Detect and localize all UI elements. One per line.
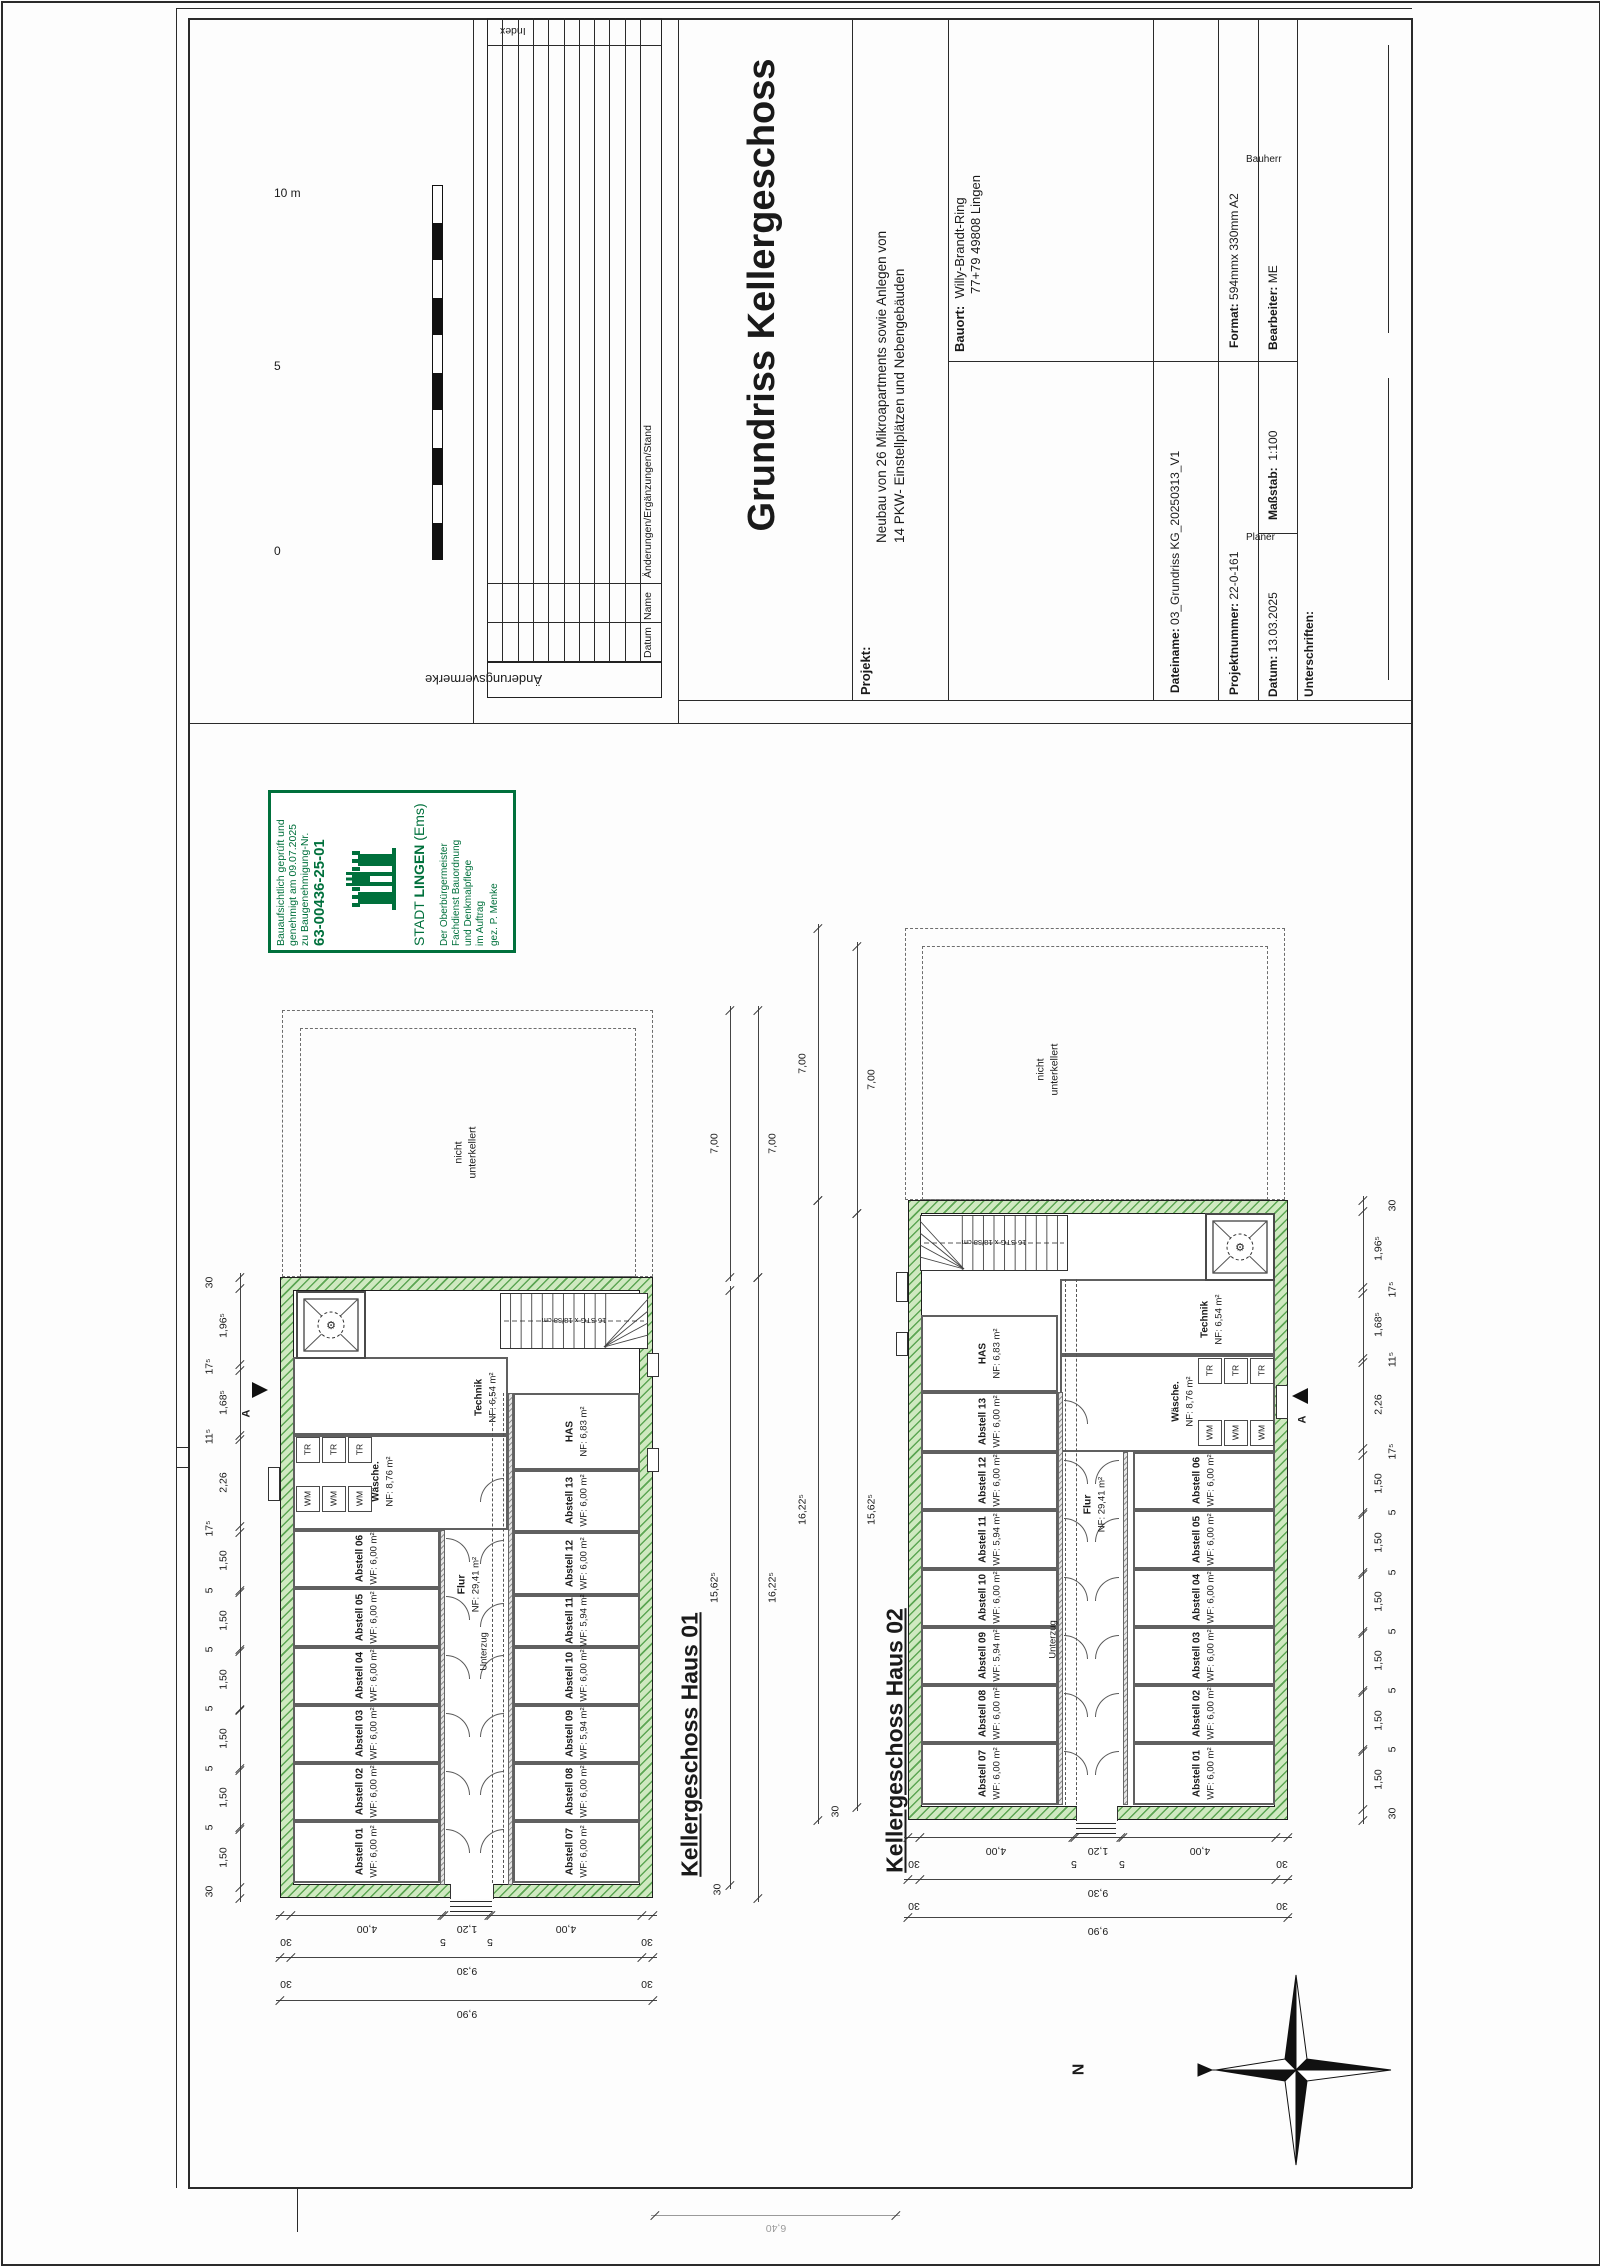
haus-2-room	[1060, 1279, 1275, 1355]
haus-2-room	[921, 1510, 1058, 1569]
haus-2-room	[921, 1685, 1058, 1743]
signature-line-bauherr	[1388, 45, 1389, 333]
haus-1-room	[513, 1705, 640, 1763]
revisions-row-line	[518, 18, 519, 662]
revisions-grid	[487, 18, 662, 662]
sheet-frame-left2	[176, 8, 177, 2188]
haus-2-room	[1133, 1569, 1275, 1627]
titleblock-hdiv-2	[1258, 533, 1297, 534]
haus-1-elevator-icon: ⚙	[296, 1291, 366, 1359]
haus-2-room	[1133, 1627, 1275, 1685]
haus-2-wm-box	[1198, 1420, 1222, 1446]
haus-1-room	[513, 1595, 640, 1647]
haus-1-light-well	[647, 1448, 659, 1472]
titleblock-div-a	[852, 18, 853, 701]
haus-2-corridor-wall	[1058, 1392, 1063, 1805]
haus-1-unterzug-line	[492, 1393, 493, 1883]
header-strip-bottom	[188, 723, 1412, 724]
signature-line-planer	[1388, 378, 1389, 680]
haus-2-wm-box	[1250, 1420, 1274, 1446]
haus-1-nicht-unterkellert-inner	[300, 1028, 636, 1277]
dim-line	[758, 1006, 759, 1281]
haus-2-light-well	[896, 1272, 908, 1302]
haus-2-light-well	[896, 1332, 908, 1356]
haus-1-room	[513, 1647, 640, 1705]
dim-line	[276, 2000, 657, 2001]
dim-line	[857, 942, 858, 1217]
haus-1-room	[293, 1357, 508, 1435]
revisions-col-line	[487, 622, 662, 623]
dim-line	[904, 1879, 1292, 1880]
revisions-row-line	[533, 18, 534, 662]
revisions-row-line	[609, 18, 610, 662]
revisions-col-line	[487, 583, 662, 584]
haus-1-stairs-icon	[500, 1293, 648, 1349]
haus-2-room	[1133, 1685, 1275, 1743]
haus-2-room	[1133, 1452, 1275, 1510]
sheet-frame-top2	[176, 8, 1412, 9]
titleblock-hdiv-1	[948, 361, 1297, 362]
dim-line	[758, 1273, 759, 1902]
sheet-frame-left	[188, 18, 190, 2188]
dim-line	[276, 1957, 657, 1958]
dim-line	[904, 1837, 1292, 1838]
haus-2-wm-box	[1224, 1420, 1248, 1446]
titleblock-div-c	[1153, 18, 1154, 701]
haus-1-tr-box	[296, 1437, 320, 1463]
haus-2-tr-box	[1250, 1358, 1274, 1384]
haus-1-corridor-wall	[440, 1530, 445, 1885]
haus-2-room	[921, 1392, 1058, 1452]
haus-1-room	[513, 1821, 640, 1883]
haus-2-section-marker-icon	[1292, 1388, 1308, 1404]
fold-mark-left-b	[176, 1467, 188, 1468]
revisions-row-line	[579, 18, 580, 662]
haus-2-room	[921, 1627, 1058, 1685]
haus-1-tr-box	[322, 1437, 346, 1463]
dim-line	[818, 924, 819, 1204]
dim-line	[651, 2215, 900, 2216]
north-arrow-icon	[1186, 1950, 1406, 2190]
haus-1-room	[293, 1705, 440, 1763]
haus-1-entrance-step	[450, 1901, 492, 1902]
image-border	[1, 1, 1600, 2266]
haus-2-tr-box	[1198, 1358, 1222, 1384]
haus-2-entrance-step	[1076, 1823, 1116, 1824]
titleblock-div-f	[1297, 18, 1298, 701]
haus-1-tr-box	[348, 1437, 372, 1463]
haus-1-corridor-wall	[508, 1393, 513, 1885]
haus-2-stairs-icon	[920, 1215, 1068, 1271]
dim-line	[276, 1915, 657, 1916]
haus-2-entrance-step	[1076, 1833, 1116, 1834]
dim-line	[730, 1286, 731, 1889]
haus-2-tr-box	[1224, 1358, 1248, 1384]
dim-line	[818, 1196, 819, 1824]
haus-1-wm-box	[322, 1486, 346, 1512]
scale-bar-segment	[433, 373, 442, 411]
haus-1-entrance-step	[450, 1906, 492, 1907]
haus-1-room	[293, 1530, 440, 1588]
haus-1-light-well	[647, 1353, 659, 1377]
haus-2-room	[1133, 1510, 1275, 1569]
haus-2-room	[921, 1743, 1058, 1805]
haus-1-wm-box	[296, 1486, 320, 1512]
haus-2-entrance-opening	[1076, 1806, 1118, 1821]
haus-1-section-marker-icon	[252, 1382, 268, 1398]
haus-1-room	[293, 1647, 440, 1705]
sheet-frame-top	[188, 18, 1412, 20]
revisions-row-line	[564, 18, 565, 662]
dim-line	[904, 1917, 1292, 1918]
scale-bar-segment	[433, 448, 442, 486]
header-divider-2	[678, 18, 679, 723]
haus-2-room	[921, 1452, 1058, 1510]
haus-1-entrance-step	[450, 1911, 492, 1912]
titleblock-bottom	[678, 700, 1412, 701]
revisions-row-line	[548, 18, 549, 662]
haus-2-room	[921, 1569, 1058, 1627]
haus-2-room	[1133, 1743, 1275, 1805]
revisions-col-line	[487, 45, 662, 46]
titleblock-div-e	[1258, 18, 1259, 701]
haus-2-corridor-wall	[1123, 1452, 1128, 1805]
haus-1-room	[293, 1821, 440, 1883]
titleblock-div-d	[1218, 18, 1219, 701]
titleblock-div-b	[948, 18, 949, 701]
haus-1-room	[293, 1763, 440, 1821]
haus-1-room	[513, 1470, 640, 1532]
haus-1-room	[513, 1763, 640, 1821]
screenshot-root: { "colors":{"stamp_green":"#00703c","wal…	[0, 0, 1600, 2265]
scale-bar-segment	[433, 523, 442, 561]
dim-line	[857, 1209, 858, 1811]
revisions-band	[487, 662, 662, 698]
haus-2-unterzug-line	[1076, 1279, 1077, 1805]
svg-text:⚙: ⚙	[326, 1320, 336, 1332]
haus-2-light-well	[1276, 1385, 1288, 1419]
revisions-header-line	[640, 18, 641, 662]
haus-1-room	[293, 1588, 440, 1647]
scale-bar-segment	[433, 298, 442, 336]
fold-mark-left-a	[176, 1447, 188, 1448]
haus-2-unterzug-line	[1065, 1279, 1066, 1805]
revisions-row-line	[594, 18, 595, 662]
haus-2-room	[921, 1315, 1058, 1392]
haus-1-wm-box	[348, 1486, 372, 1512]
haus-2-entrance-step	[1076, 1828, 1116, 1829]
city-logo-icon	[338, 848, 404, 910]
header-divider-1	[473, 18, 474, 723]
dim-line	[730, 1006, 731, 1281]
scale-bar-segment	[433, 223, 442, 261]
revisions-row-line	[625, 18, 626, 662]
haus-1-room	[513, 1532, 640, 1595]
revisions-row-line	[502, 18, 503, 662]
fold-mark-bottom	[297, 2187, 298, 2232]
sheet-frame-right	[1411, 18, 1413, 2188]
haus-2-elevator-icon: ⚙	[1205, 1213, 1275, 1281]
haus-1-entrance-opening	[450, 1884, 494, 1899]
haus-1-room	[513, 1393, 640, 1470]
haus-2-nicht-unterkellert-inner	[922, 946, 1268, 1200]
haus-1-light-well	[268, 1467, 280, 1501]
haus-1-unterzug-line	[503, 1393, 504, 1883]
svg-text:⚙: ⚙	[1235, 1242, 1245, 1254]
